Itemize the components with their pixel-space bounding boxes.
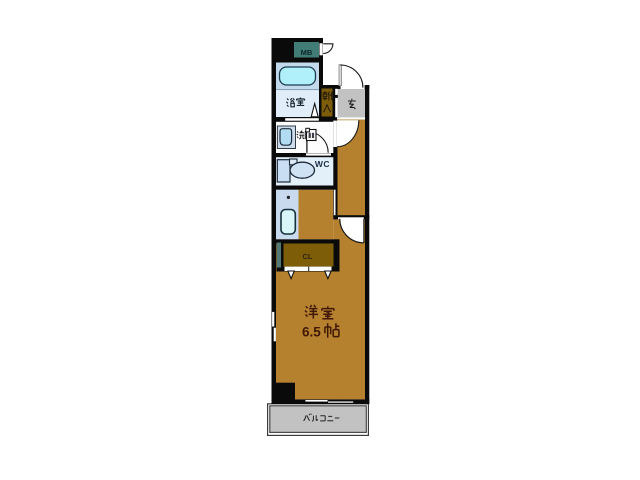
svg-text:6.5: 6.5 — [302, 325, 321, 340]
svg-text:CL: CL — [303, 252, 313, 261]
svg-text:WC: WC — [315, 159, 330, 169]
svg-text:MB: MB — [301, 48, 313, 57]
